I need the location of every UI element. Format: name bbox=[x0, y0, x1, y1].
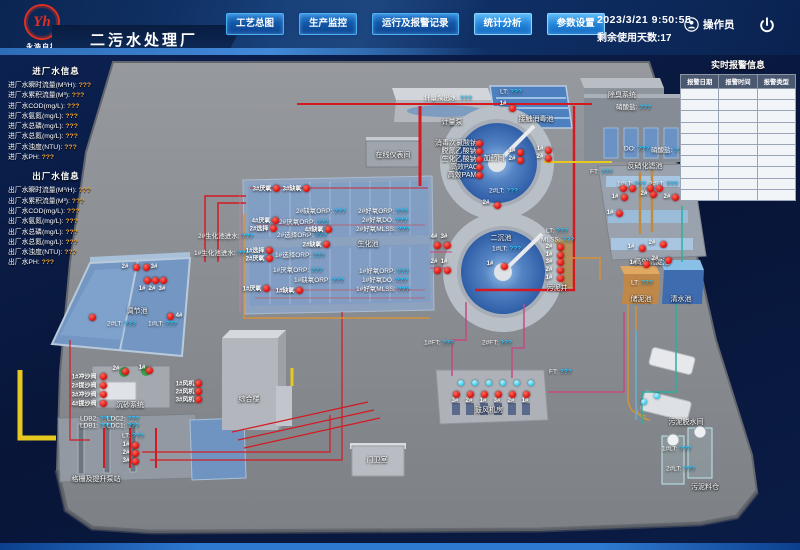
alarm-header-row: 报警日期报警时间报警类型 bbox=[681, 75, 796, 89]
alarm-row bbox=[681, 178, 796, 189]
water-info-item: 进厂水累积流量(M³): ??? bbox=[8, 91, 118, 101]
alarm-row bbox=[681, 100, 796, 111]
clear-water-tank bbox=[660, 260, 704, 304]
alarm-row bbox=[681, 89, 796, 100]
water-info-item: 出厂水COD(mg/L): ??? bbox=[8, 207, 118, 217]
clarifier-2 bbox=[440, 106, 554, 220]
alarm-column-header: 报警时间 bbox=[719, 75, 757, 89]
nav-button-3[interactable]: 运行及报警记录 bbox=[372, 13, 459, 35]
water-info-item: 进厂水COD(mg/L): ??? bbox=[8, 102, 118, 112]
water-info-item: 进厂水浊度(NTU): ??? bbox=[8, 143, 118, 153]
outlet-water-title: 出厂水信息 bbox=[8, 170, 104, 182]
title-panel: 二污水处理厂 bbox=[52, 25, 242, 52]
alarm-panel: 实时报警信息 报警日期报警时间报警类型 bbox=[680, 58, 796, 201]
nav-button-5[interactable]: 参数设置 bbox=[547, 13, 605, 35]
inlet-water-title: 进厂水信息 bbox=[8, 65, 104, 77]
alarm-row bbox=[681, 122, 796, 133]
alarm-row bbox=[681, 144, 796, 155]
header: Yh 永浩自控 二污水处理厂 工艺总图生产监控运行及报警记录统计分析参数设置 2… bbox=[0, 0, 800, 55]
alarm-row bbox=[681, 189, 796, 200]
water-info-item: 进厂水PH: ??? bbox=[8, 153, 118, 163]
header-info: 2023/3/21 9:50:55 剩余使用天数:17 bbox=[597, 14, 691, 44]
nav-buttons: 工艺总图生产监控运行及报警记录统计分析参数设置 bbox=[226, 13, 605, 35]
clarifier-1 bbox=[443, 212, 563, 332]
outlet-water-list: 出厂水瞬时流量(M³/H): ???出厂水累积流量(M³): ???出厂水COD… bbox=[8, 186, 118, 268]
alarm-column-header: 报警日期 bbox=[681, 75, 719, 89]
water-info-item: 出厂水总磷(mg/L): ??? bbox=[8, 228, 118, 238]
water-info-item: 进厂水瞬时流量(M³/H): ??? bbox=[8, 81, 118, 91]
water-info-item: 出厂水PH: ??? bbox=[8, 258, 118, 268]
scada-screen: 计量泵在线仪表间加药间接触消毒池除臭系统反硝化滤池高效沉淀池储泥池清水池污泥井二… bbox=[0, 0, 800, 550]
water-info-item: 出厂水浊度(NTU): ??? bbox=[8, 248, 118, 258]
alarm-row bbox=[681, 111, 796, 122]
operator-icon bbox=[684, 17, 699, 32]
bottom-bar bbox=[0, 543, 800, 550]
logo-monogram: Yh bbox=[33, 14, 51, 31]
alarm-body bbox=[681, 89, 796, 201]
water-info-item: 进厂水总氮(mg/L): ??? bbox=[8, 132, 118, 142]
power-icon bbox=[758, 16, 776, 34]
alarm-column-header: 报警类型 bbox=[757, 75, 795, 89]
grit-system bbox=[92, 366, 170, 408]
page-title: 二污水处理厂 bbox=[90, 29, 242, 50]
inlet-water-list: 进厂水瞬时流量(M³/H): ???进厂水累积流量(M³): ???进厂水COD… bbox=[8, 81, 118, 163]
water-info-item: 出厂水总氮(mg/L): ??? bbox=[8, 238, 118, 248]
water-info-item: 出厂水氨氮(mg/L): ??? bbox=[8, 217, 118, 227]
online-instrument-room bbox=[366, 137, 420, 167]
alarm-table: 报警日期报警时间报警类型 bbox=[680, 74, 796, 201]
water-info-item: 出厂水累积流量(M³): ??? bbox=[8, 197, 118, 207]
alarm-row bbox=[681, 133, 796, 144]
power-button[interactable] bbox=[758, 16, 778, 36]
water-info-item: 进厂水总磷(mg/L): ??? bbox=[8, 122, 118, 132]
operator-button[interactable]: 操作员 bbox=[684, 17, 735, 32]
alarm-row bbox=[681, 167, 796, 178]
datetime: 2023/3/21 9:50:55 bbox=[597, 14, 691, 26]
sludge-storage-tank bbox=[620, 266, 660, 304]
water-info-item: 出厂水瞬时流量(M³/H): ??? bbox=[8, 186, 118, 196]
alarm-row bbox=[681, 156, 796, 167]
water-info-item: 进厂水氨氮(mg/L): ??? bbox=[8, 112, 118, 122]
screen-pump-station bbox=[58, 414, 246, 482]
remaining-days: 剩余使用天数:17 bbox=[597, 29, 691, 44]
nav-button-4[interactable]: 统计分析 bbox=[474, 13, 532, 35]
blower-room bbox=[436, 370, 548, 424]
biological-tank bbox=[243, 176, 434, 314]
nav-button-2[interactable]: 生产监控 bbox=[299, 13, 357, 35]
operator-label: 操作员 bbox=[703, 17, 735, 32]
guard-room bbox=[350, 443, 406, 476]
alarm-panel-title: 实时报警信息 bbox=[680, 58, 796, 71]
nav-button-1[interactable]: 工艺总图 bbox=[226, 13, 284, 35]
office-building bbox=[222, 330, 292, 430]
water-info-panel: 进厂水信息 进厂水瞬时流量(M³/H): ???进厂水累积流量(M³): ???… bbox=[8, 62, 118, 269]
